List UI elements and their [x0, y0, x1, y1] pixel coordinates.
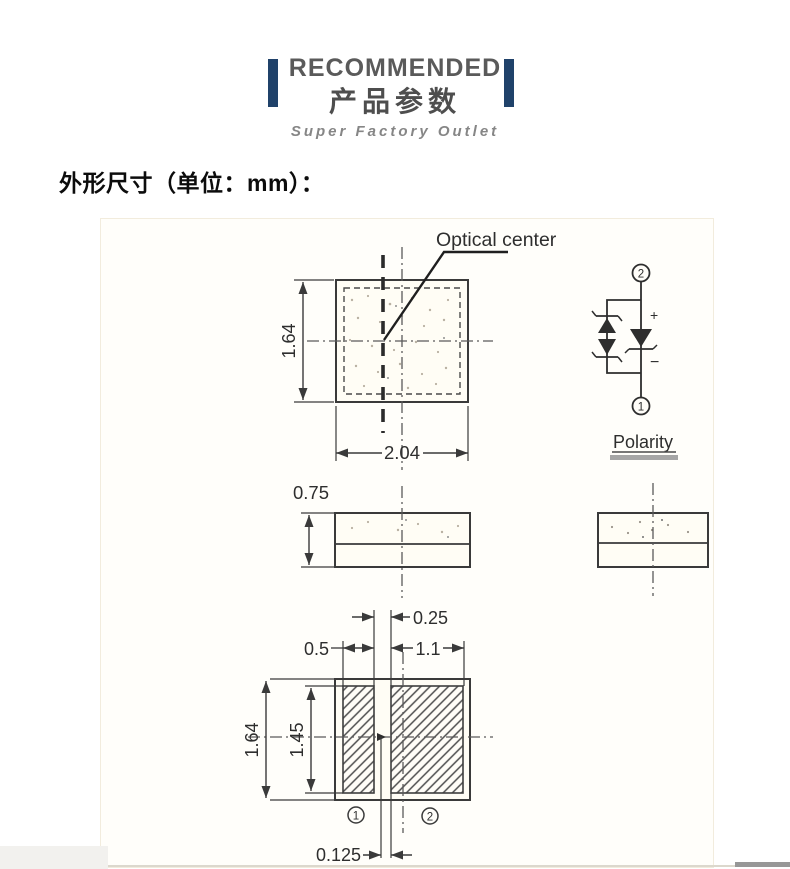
dim-top-height: 1.64: [279, 323, 299, 358]
dim-bottom-height: 1.64: [242, 722, 262, 757]
dim-pad-height: 1.45: [287, 722, 307, 757]
polarity-label: Polarity: [613, 432, 673, 452]
dim-pad2-width: 1.1: [415, 639, 440, 659]
dim-pad1-width: 0.5: [304, 639, 329, 659]
polarity-minus: −: [650, 354, 659, 371]
polarity-underline-bar: [610, 455, 678, 460]
terminal-2-number: 2: [638, 269, 644, 281]
dim-pad-gap: 0.25: [413, 608, 448, 628]
terminal-1-number: 1: [638, 402, 644, 414]
pad-2: [391, 686, 463, 793]
pad-1-number: 1: [353, 811, 359, 823]
top-view: 1.64 2.04 Optical center: [279, 229, 557, 470]
led-diode-icon: [625, 329, 657, 353]
pad-2-number: 2: [427, 812, 433, 824]
polarity-caption: Polarity: [610, 432, 678, 460]
dim-center-offset: 0.125: [316, 845, 361, 865]
package-outline-drawing: 1.64 2.04 Optical center 2 1: [0, 0, 790, 869]
side-view: 0.75: [293, 482, 470, 598]
pad-1: [343, 686, 374, 793]
optical-center-label: Optical center: [436, 229, 557, 251]
dim-thickness: 0.75: [293, 482, 329, 503]
bottom-view: 0.25 0.5 1.1 1.64 1.45 1 2 0.125: [242, 608, 493, 865]
polarity-plus: +: [650, 307, 658, 323]
polarity-circuit: 2 1 + −: [592, 265, 659, 415]
dim-top-width: 2.04: [384, 442, 420, 463]
side-view-right: [598, 483, 708, 596]
